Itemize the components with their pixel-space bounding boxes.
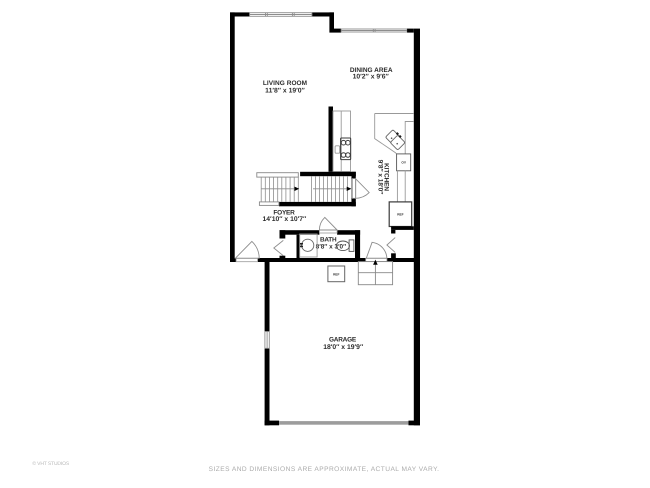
svg-text:LIVING ROOM: LIVING ROOM (263, 80, 307, 87)
svg-text:11′8″ x 19′0″: 11′8″ x 19′0″ (265, 88, 305, 95)
svg-text:REF: REF (333, 272, 339, 276)
svg-text:BATH: BATH (320, 236, 337, 243)
svg-text:8′8″ x 3′0″: 8′8″ x 3′0″ (316, 243, 347, 250)
svg-text:9′8″ x 18′0″: 9′8″ x 18′0″ (377, 160, 384, 195)
svg-text:SIZES AND DIMENSIONS ARE APPRO: SIZES AND DIMENSIONS ARE APPROXIMATE, AC… (209, 466, 440, 473)
svg-text:14′10″ x 10′7″: 14′10″ x 10′7″ (263, 216, 308, 223)
svg-text:10′2″ x 9′6″: 10′2″ x 9′6″ (353, 74, 390, 81)
svg-text:GARAGE: GARAGE (329, 337, 357, 344)
svg-text:18′0″ x 19′9″: 18′0″ x 19′9″ (323, 344, 364, 351)
svg-text:© VHT STUDIOS: © VHT STUDIOS (32, 461, 69, 467)
svg-text:REF: REF (397, 212, 403, 216)
